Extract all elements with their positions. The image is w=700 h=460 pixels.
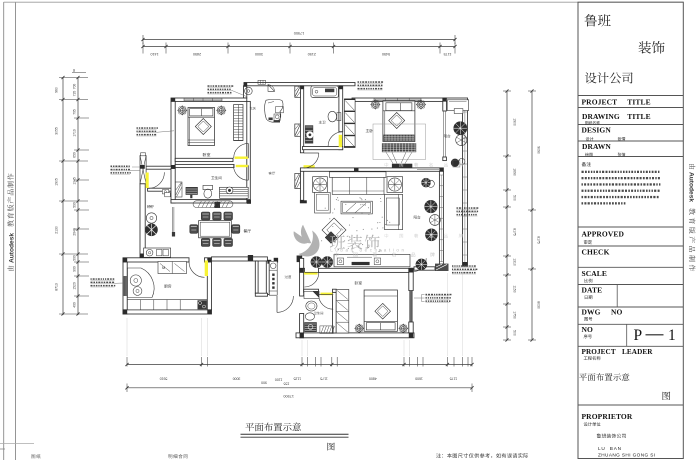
svg-text:720: 720 [72,91,76,97]
svg-text:NO: NO [611,308,623,317]
svg-text:APPROVED: APPROVED [582,230,625,239]
svg-text:960: 960 [55,87,59,93]
svg-text:M: M [162,265,165,270]
svg-text:5910: 5910 [160,377,168,381]
svg-text:8175: 8175 [513,228,517,236]
svg-text:1100: 1100 [275,378,283,382]
svg-text:3000: 3000 [233,377,241,381]
svg-text:4800: 4800 [369,377,377,381]
svg-text:DRAWING: DRAWING [582,112,620,121]
svg-text:TITLE: TITLE [627,112,650,121]
svg-text:3055: 3055 [55,127,59,135]
svg-text:ZHUANG SHI GONG SI: ZHUANG SHI GONG SI [598,453,655,458]
svg-text:5450: 5450 [382,52,390,56]
svg-text:590: 590 [72,202,76,208]
svg-text:705: 705 [72,109,76,115]
svg-text:8713: 8713 [55,283,59,291]
svg-text:650: 650 [72,152,76,158]
svg-text:TITLE: TITLE [627,98,650,107]
svg-text:1175: 1175 [444,52,452,56]
svg-text:1175: 1175 [320,377,328,381]
svg-text:DRAWN: DRAWN [582,142,611,151]
svg-text:1503: 1503 [147,204,154,208]
svg-text:1310: 1310 [513,258,517,266]
svg-text:8175: 8175 [537,236,541,244]
svg-text:LU BAN: LU BAN [598,446,622,451]
svg-text:17900: 17900 [283,394,294,398]
svg-text:1150: 1150 [513,285,517,292]
svg-text:Luban decoration: Luban decoration [330,247,406,252]
svg-text:500: 500 [513,330,517,336]
svg-text:CHECK: CHECK [582,248,610,257]
svg-text:NO: NO [582,325,594,334]
svg-text:1600: 1600 [415,377,423,381]
svg-text:1520: 1520 [72,282,76,290]
svg-text:500: 500 [513,195,517,201]
svg-text:DATE: DATE [582,286,603,295]
svg-text:1175: 1175 [450,377,458,381]
svg-text:1410: 1410 [150,52,158,56]
svg-text:500: 500 [72,255,76,261]
svg-text:P: P [634,327,643,344]
svg-text:1: 1 [668,327,676,344]
svg-text:1345: 1345 [72,177,76,185]
svg-text:DESIGN: DESIGN [582,126,612,135]
svg-text:PROJECT: PROJECT [582,98,618,107]
svg-text:9090: 9090 [537,146,541,154]
svg-text:1900: 1900 [513,118,517,126]
svg-text:1750: 1750 [513,311,517,319]
svg-text:17900: 17900 [294,31,305,35]
svg-text:900: 900 [261,381,267,385]
svg-text:2040: 2040 [72,228,76,236]
svg-text:LEADER: LEADER [622,348,653,356]
svg-text:2150: 2150 [308,52,316,56]
svg-text:SCALE: SCALE [582,269,608,278]
svg-text:Autodesk: Autodesk [687,172,694,202]
svg-text:1125: 1125 [293,377,301,381]
svg-text:40: 40 [72,69,76,73]
svg-text:3000: 3000 [255,52,263,56]
svg-text:1690: 1690 [513,168,517,176]
svg-text:1719: 1719 [72,129,76,137]
svg-text:900: 900 [72,266,76,272]
svg-text:2850: 2850 [193,52,201,56]
svg-text:400: 400 [72,302,76,308]
svg-text:1905: 1905 [55,178,59,186]
svg-text:155: 155 [284,382,290,386]
svg-text:PROJECT: PROJECT [582,348,616,356]
svg-text:DWG: DWG [582,308,601,317]
svg-text:8030: 8030 [537,301,541,309]
svg-text:700: 700 [72,84,76,90]
svg-text:2130: 2130 [55,226,59,234]
svg-text:Autodesk: Autodesk [9,233,16,263]
svg-text:PROPRIETOR: PROPRIETOR [582,412,633,421]
